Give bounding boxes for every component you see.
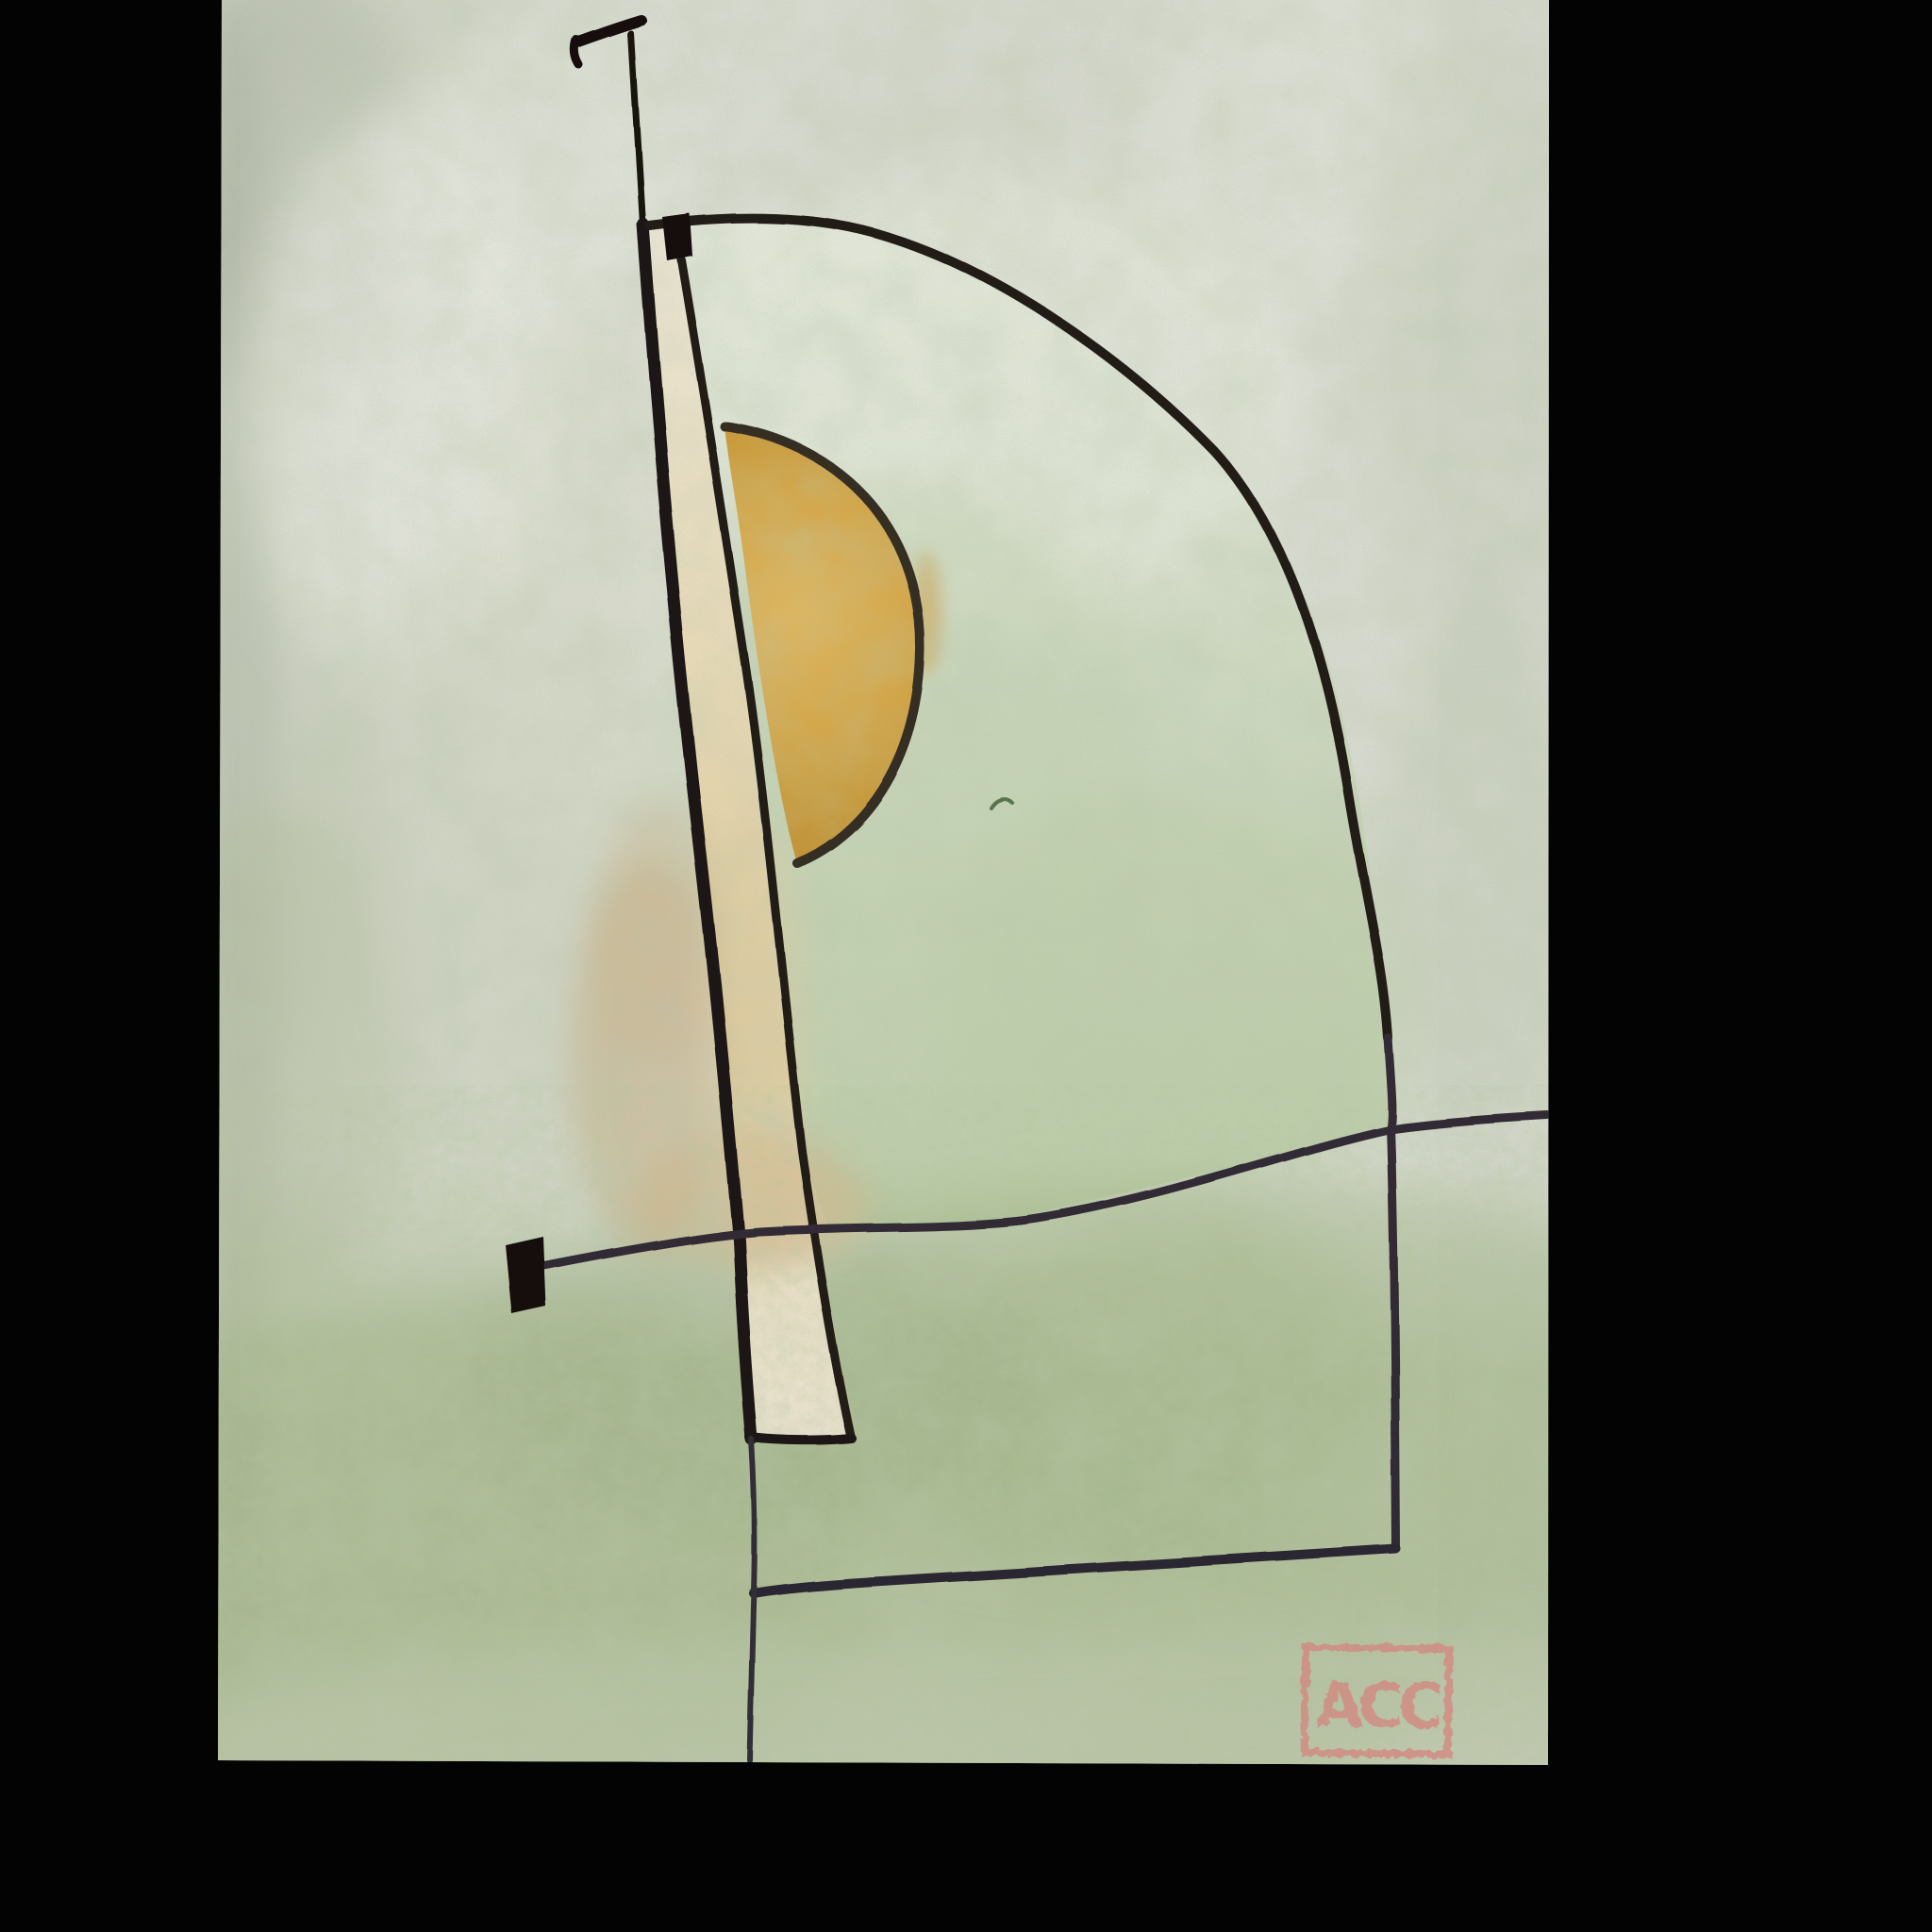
green-speckle-texture xyxy=(218,1085,1549,1766)
artwork-photo: ACC xyxy=(0,0,1932,1932)
knob-mark xyxy=(662,213,692,260)
strip-bottom-edge-line xyxy=(750,1438,852,1441)
stamp-initials: ACC xyxy=(1315,1669,1441,1742)
flag-mark xyxy=(506,1237,546,1314)
painting-canvas: ACC xyxy=(0,0,1932,1932)
t-bar-hook xyxy=(575,40,579,65)
